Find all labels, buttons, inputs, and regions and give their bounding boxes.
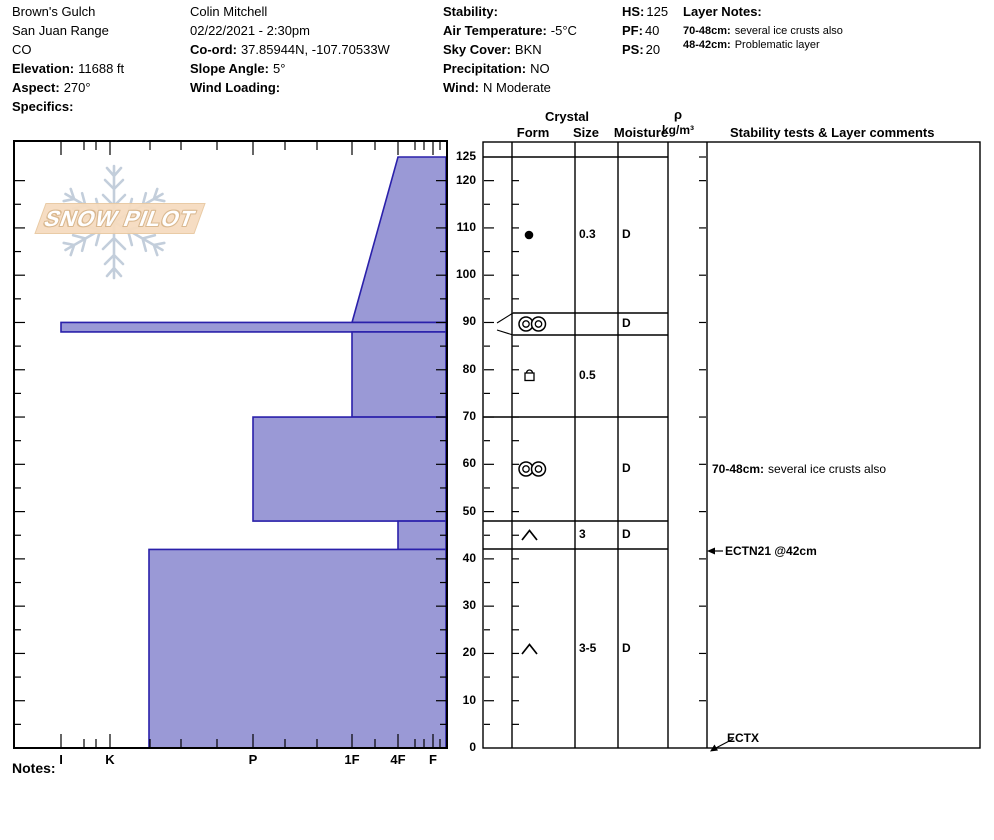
crystal-form-symbol <box>516 523 550 550</box>
depth-tick-label: 60 <box>444 456 476 470</box>
layer-comment: 70-48cm:several ice crusts also <box>712 462 886 476</box>
depth-tick-label: 70 <box>444 409 476 423</box>
hardness-tick-label: P <box>239 752 267 767</box>
snow-layer <box>149 549 446 748</box>
density-unit-header: kg/m³ <box>662 123 694 137</box>
hardness-tick-label: F <box>419 752 447 767</box>
moisture-value: D <box>622 527 631 541</box>
depth-tick-label: 30 <box>444 598 476 612</box>
moisture-header: Moisture <box>614 125 668 140</box>
depth-tick-label: 50 <box>444 504 476 518</box>
snow-layer <box>352 157 446 322</box>
depth-tick-label: 40 <box>444 551 476 565</box>
snow-layer <box>352 332 446 417</box>
moisture-value: D <box>622 461 631 475</box>
moisture-value: D <box>622 641 631 655</box>
comments-header: Stability tests & Layer comments <box>730 125 934 140</box>
crystal-form-symbol <box>516 364 550 391</box>
depth-tick-label: 125 <box>444 149 476 163</box>
depth-tick-label: 120 <box>444 173 476 187</box>
depth-tick-label: 20 <box>444 645 476 659</box>
crystal-form-symbol <box>516 223 550 250</box>
depth-tick-label: 10 <box>444 693 476 707</box>
hardness-tick-label: K <box>96 752 124 767</box>
layer-comment-range: 70-48cm: <box>712 462 764 476</box>
hardness-tick-label: 4F <box>384 752 412 767</box>
grain-size-value: 3-5 <box>579 641 596 655</box>
profile-layers <box>61 157 446 748</box>
depth-tick-label: 100 <box>444 267 476 281</box>
crystal-form-symbol <box>516 637 550 664</box>
depth-tick-label: 110 <box>444 220 476 234</box>
moisture-value: D <box>622 316 631 330</box>
layer-table-grid <box>483 142 980 748</box>
hardness-tick-label: 1F <box>338 752 366 767</box>
depth-tick-label: 90 <box>444 314 476 328</box>
snowpilot-logo-banner: SNOW PILOT <box>34 203 205 234</box>
snow-layer <box>398 521 446 549</box>
ect-mid-result: ECTN21 @42cm <box>725 544 817 558</box>
size-header: Size <box>573 125 599 140</box>
crystal-form-symbol <box>516 457 550 484</box>
grain-size-value: 0.5 <box>579 368 596 382</box>
snow-layer <box>61 322 446 331</box>
hardness-tick-label: I <box>47 752 75 767</box>
density-header: ρ <box>674 107 682 122</box>
ect-bottom-result: ECTX <box>727 731 759 745</box>
form-header: Form <box>517 125 550 140</box>
grain-size-value: 3 <box>579 527 586 541</box>
snow-layer <box>253 417 446 521</box>
crystal-header: Crystal <box>545 109 589 124</box>
ect-mid-arrow <box>707 548 723 555</box>
thin-layer-expander <box>497 313 513 335</box>
depth-tick-label: 0 <box>444 740 476 754</box>
grain-size-value: 0.3 <box>579 227 596 241</box>
crystal-form-symbol <box>516 312 550 339</box>
depth-tick-label: 80 <box>444 362 476 376</box>
layer-comment-text: several ice crusts also <box>768 462 886 476</box>
moisture-value: D <box>622 227 631 241</box>
